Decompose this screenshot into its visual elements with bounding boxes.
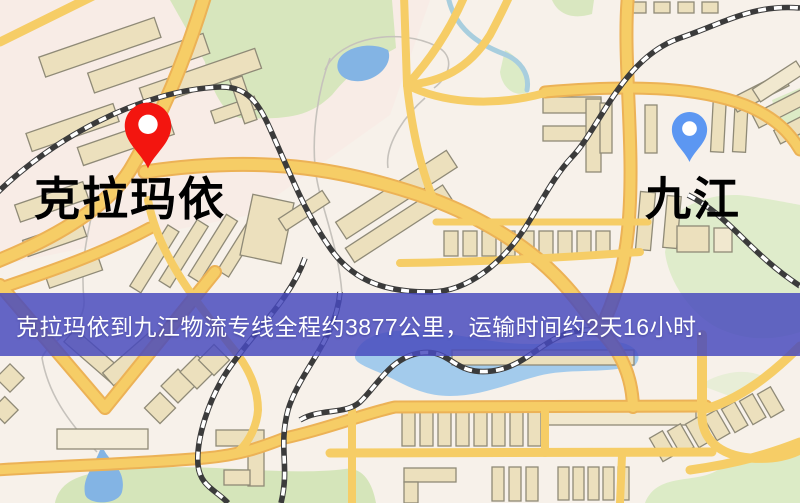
origin-pin-marker[interactable] — [117, 100, 179, 171]
pin-icon — [672, 112, 707, 162]
origin-city-label: 克拉玛依 — [34, 176, 226, 222]
destination-city-label: 九江 — [645, 176, 741, 222]
map-background — [0, 0, 800, 503]
pin-icon — [125, 103, 172, 169]
pin-inner-dot — [682, 121, 697, 136]
route-info-text: 克拉玛依到九江物流专线全程约3877公里，运输时间约2天16小时. — [16, 308, 703, 342]
route-info-banner: 克拉玛依到九江物流专线全程约3877公里，运输时间约2天16小时. — [0, 293, 800, 356]
destination-pin-marker[interactable] — [666, 104, 713, 170]
pin-inner-dot — [138, 115, 157, 134]
logistics-route-map: 克拉玛依 九江 克拉玛依到九江物流专线全程约3877公里，运输时间约2天16小时… — [0, 0, 800, 503]
